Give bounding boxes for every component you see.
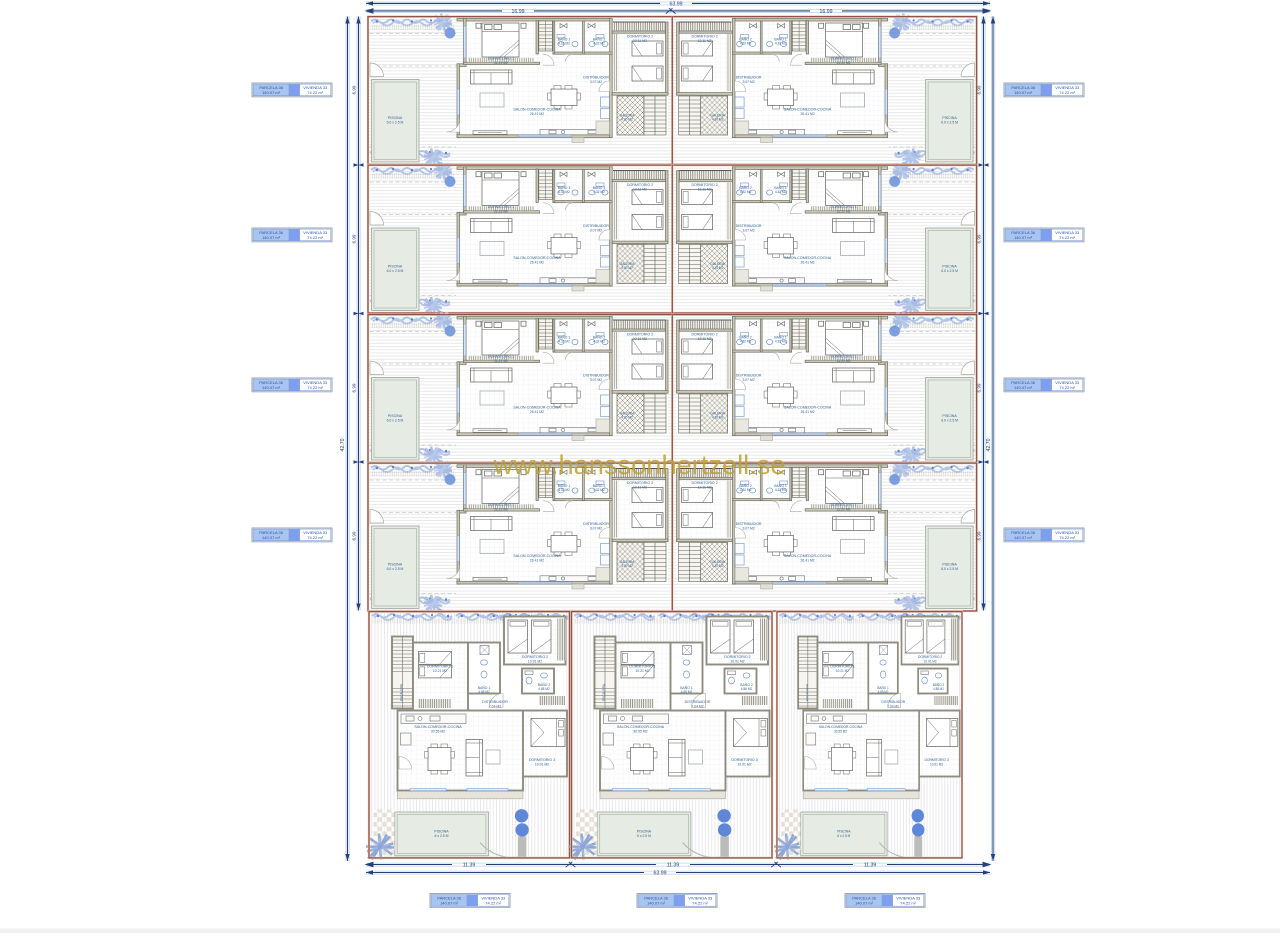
svg-text:16.99: 16.99 (512, 9, 525, 15)
svg-text:6.99: 6.99 (352, 531, 357, 540)
svg-text:6.99: 6.99 (977, 234, 982, 243)
svg-text:6.99: 6.99 (977, 531, 982, 540)
svg-text:6.99: 6.99 (352, 383, 357, 392)
svg-text:6.99: 6.99 (977, 383, 982, 392)
svg-text:42.70: 42.70 (986, 438, 992, 451)
svg-text:63.99: 63.99 (654, 871, 667, 877)
svg-text:6.99: 6.99 (977, 85, 982, 94)
svg-text:6.99: 6.99 (352, 85, 357, 94)
svg-text:16.99: 16.99 (820, 9, 833, 15)
svg-text:11.39: 11.39 (864, 863, 877, 869)
svg-text:42.70: 42.70 (340, 438, 346, 451)
svg-text:63.99: 63.99 (670, 2, 683, 8)
svg-text:11.39: 11.39 (463, 863, 476, 869)
svg-text:www.hanssonhertzell.se: www.hanssonhertzell.se (492, 450, 785, 480)
svg-text:11.39: 11.39 (667, 863, 680, 869)
svg-text:6.99: 6.99 (352, 234, 357, 243)
